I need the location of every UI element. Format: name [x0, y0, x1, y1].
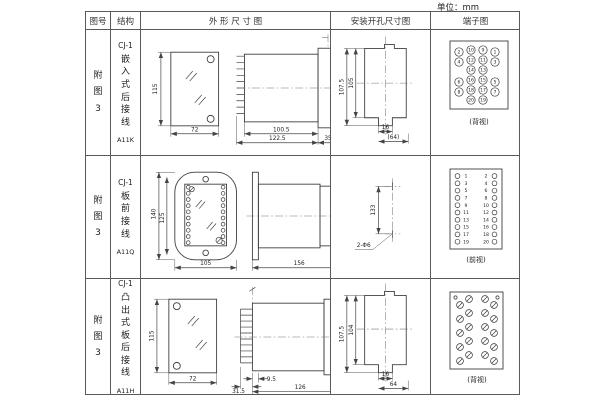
view-label: (背视): [469, 117, 489, 126]
dim-front-width: 72: [189, 376, 197, 382]
svg-text:11: 11: [463, 210, 469, 216]
svg-text:11: 11: [480, 57, 486, 63]
row3-fig-no-cell: 附图3: [86, 279, 111, 395]
dim-front-width: 72: [191, 127, 199, 133]
dim-v-inner: 105: [349, 77, 355, 88]
row2-fig-no-cell: 附图3: [86, 156, 111, 279]
svg-text:2: 2: [458, 49, 461, 55]
dim-v-outer: 107.5: [339, 325, 345, 342]
svg-text:14: 14: [468, 67, 474, 73]
dim-side-flange: 35: [324, 136, 330, 142]
dim-v-inner: 104: [349, 324, 355, 335]
svg-text:19: 19: [480, 97, 486, 103]
dim-pin-depth: 31.5: [232, 389, 245, 395]
dim-span: 133: [371, 204, 377, 215]
svg-text:15: 15: [480, 77, 486, 83]
structure-model: A11Q: [117, 248, 135, 256]
mount-hole-icon: [207, 55, 214, 62]
svg-text:10: 10: [468, 47, 474, 53]
svg-text:2: 2: [485, 173, 488, 179]
terminal-pins-icon: [236, 56, 244, 113]
glass-hatch-icon: [195, 94, 206, 104]
row3-install-drawing: 107.5 104 16 64: [331, 279, 430, 395]
row3-outline-cell: 115 72 9.5 31.5: [141, 279, 331, 395]
dim-front-inner: 125: [160, 212, 166, 223]
svg-text:17: 17: [463, 232, 469, 238]
structure-name: 嵌入式后接线: [119, 54, 131, 130]
center-line: [357, 284, 414, 383]
dim-front-height: 115: [153, 83, 159, 94]
svg-text:8: 8: [485, 195, 488, 201]
spec-table: 图号 结构 外 形 尺 寸 图 安装开孔尺寸图 端子图 附图3 CJ-1 嵌入式…: [85, 11, 520, 395]
row2-install-drawing: 133 2-Φ6: [331, 156, 430, 279]
svg-text:20: 20: [468, 97, 474, 103]
row2-terminal-cell: 1357911131517192468101214161820 (前视): [431, 156, 520, 279]
dim-side-body: 100.5: [273, 127, 290, 133]
mount-hole-icon: [203, 250, 209, 256]
front-view: 115 72: [153, 52, 219, 137]
structure-name: 凸出式板后接线: [119, 292, 131, 380]
row1-outline-cell: 115 72 100.5 122.5 35: [141, 30, 331, 156]
plate-terminals: [186, 185, 225, 244]
svg-text:10: 10: [483, 202, 489, 208]
svg-text:7: 7: [494, 89, 497, 95]
svg-text:9: 9: [465, 202, 468, 208]
row3-terminal-cell: (背视): [431, 279, 520, 395]
glass-hatch-icon: [207, 221, 216, 229]
row1-install-drawing: 107.5 105 16 (64): [331, 30, 430, 156]
side-view: 100.5 122.5 35: [236, 34, 330, 144]
svg-text:6: 6: [485, 188, 488, 194]
dim-side-length: 156: [294, 261, 305, 267]
row2-terminal-drawing: 1357911131517192468101214161820 (前视): [431, 156, 520, 279]
structure-model: A11K: [117, 136, 134, 144]
dim-side-length: 126: [295, 385, 306, 391]
svg-text:17: 17: [480, 87, 486, 93]
row1-terminal-cell: 2468101214161820911131517191357 (背视): [431, 30, 520, 156]
terminal-pins-icon: [240, 309, 252, 363]
svg-text:9: 9: [482, 47, 485, 53]
svg-text:4: 4: [458, 59, 461, 65]
glass-hatch-icon: [188, 316, 199, 326]
front-view: 115 72: [149, 299, 216, 385]
dim-front-height: 115: [149, 330, 155, 341]
terminal-circles: 1357911131517192468101214161820: [455, 173, 497, 245]
structure-code: CJ-1: [118, 279, 133, 288]
svg-text:4: 4: [485, 180, 488, 186]
terminal-circles: 2468101214161820911131517191357: [455, 45, 499, 103]
svg-text:12: 12: [483, 210, 489, 216]
view-label: (前视): [466, 255, 486, 264]
row2-outline-drawing: 140 125 105 156 115: [141, 156, 330, 279]
svg-text:3: 3: [494, 59, 497, 65]
svg-text:20: 20: [483, 239, 489, 245]
svg-text:5: 5: [465, 188, 468, 194]
svg-text:18: 18: [483, 232, 489, 238]
row1-outline-drawing: 115 72 100.5 122.5 35: [141, 30, 330, 156]
side-view: 156 115: [246, 172, 330, 270]
svg-text:6: 6: [458, 79, 461, 85]
center-line: [357, 36, 414, 135]
header-terminal: 端子图: [431, 12, 520, 30]
center-line: [235, 287, 330, 337]
center-line: [237, 34, 330, 88]
terminal-circles: [454, 296, 499, 365]
fig-no: 附图3: [92, 68, 104, 117]
svg-text:14: 14: [483, 217, 489, 223]
dim-v-outer: 107.5: [339, 78, 345, 95]
row3-structure-cell: CJ-1 凸出式板后接线 A11H: [111, 279, 141, 395]
header-install: 安装开孔尺寸图: [331, 12, 431, 30]
svg-text:1: 1: [494, 49, 497, 55]
header-outline: 外 形 尺 寸 图: [141, 12, 331, 30]
row2-structure-cell: CJ-1 板前接线 A11Q: [111, 156, 141, 279]
row1-install-cell: 107.5 105 16 (64): [331, 30, 431, 156]
dim-side-total: 122.5: [269, 136, 286, 142]
front-view: 140 125 105: [151, 172, 236, 270]
dim-h-tab: 16: [382, 125, 390, 131]
row2-install-cell: 133 2-Φ6: [331, 156, 431, 279]
glass-hatch-icon: [186, 71, 197, 81]
glass-hatch-icon: [196, 200, 205, 208]
svg-text:18: 18: [468, 87, 474, 93]
svg-text:1: 1: [465, 173, 468, 179]
svg-text:19: 19: [463, 239, 469, 245]
glass-hatch-icon: [196, 340, 207, 350]
mount-hole-icon: [173, 362, 180, 369]
row1-terminal-drawing: 2468101214161820911131517191357 (背视): [431, 30, 520, 156]
dim-h-overall: (64): [387, 135, 399, 141]
structure-code: CJ-1: [118, 178, 133, 187]
dim-h-tab: 16: [382, 372, 390, 378]
row1-structure-cell: CJ-1 嵌入式后接线 A11K: [111, 30, 141, 156]
view-label: (背视): [467, 375, 487, 384]
svg-text:5: 5: [494, 79, 497, 85]
header-structure: 结构: [111, 12, 141, 30]
row2-outline-cell: 140 125 105 156 115: [141, 156, 331, 279]
row3-install-cell: 107.5 104 16 64: [331, 279, 431, 395]
dim-front-outer: 140: [151, 208, 157, 219]
row3-terminal-drawing: (背视): [431, 279, 520, 395]
dim-front-width: 105: [200, 261, 211, 267]
side-view: 9.5 31.5 126: [232, 287, 330, 395]
dim-h-overall: 64: [390, 382, 398, 388]
mount-hole-icon: [203, 176, 209, 182]
svg-text:16: 16: [468, 77, 474, 83]
svg-text:15: 15: [463, 224, 469, 230]
svg-text:3: 3: [465, 180, 468, 186]
structure-code: CJ-1: [118, 41, 133, 50]
svg-text:7: 7: [465, 195, 468, 201]
svg-text:8: 8: [458, 89, 461, 95]
mount-hole-icon: [207, 115, 214, 122]
svg-text:13: 13: [463, 217, 469, 223]
svg-text:16: 16: [483, 224, 489, 230]
header-fig-no: 图号: [86, 12, 111, 30]
structure-name: 板前接线: [120, 191, 132, 241]
dim-gap: 9.5: [267, 377, 276, 383]
structure-model: A11H: [117, 387, 135, 395]
svg-text:12: 12: [468, 57, 474, 63]
svg-text:13: 13: [480, 67, 486, 73]
row1-fig-no-cell: 附图3: [86, 30, 111, 156]
document-page: 单位：mm 图号 结构 外 形 尺 寸 图 安装开孔尺寸图 端子图 附图3 CJ…: [0, 0, 600, 400]
fig-no: 附图3: [92, 313, 104, 362]
fig-no: 附图3: [92, 193, 104, 242]
hole-callout: 2-Φ6: [357, 243, 371, 249]
row3-outline-drawing: 115 72 9.5 31.5: [141, 279, 330, 395]
mount-hole-icon: [173, 303, 180, 310]
